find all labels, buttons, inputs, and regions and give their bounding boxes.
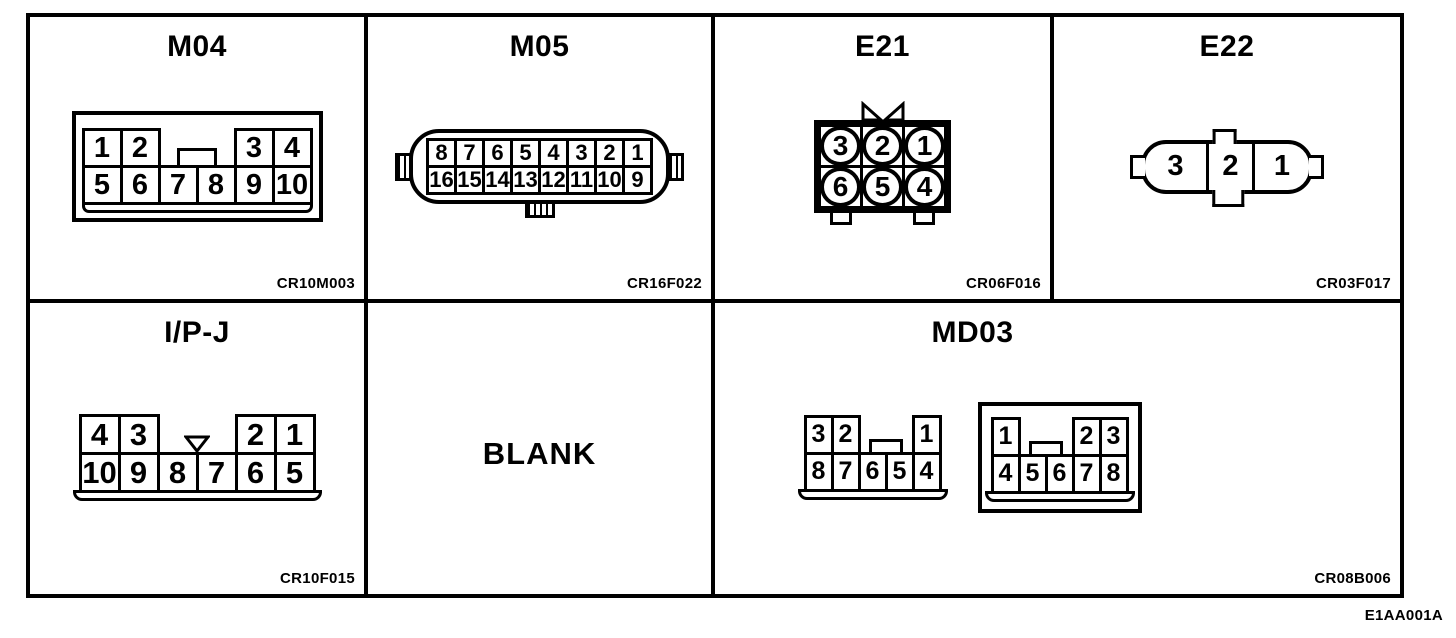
pin-circle: 5 [862, 167, 903, 207]
pin-cell: 1 [912, 415, 942, 455]
pin-cell: 8 [426, 138, 457, 168]
pin-cell: 3 [804, 415, 834, 455]
table-cell-blank: BLANK [368, 303, 715, 594]
pin-row: 1 2 3 [991, 417, 1129, 457]
pin-gap [1018, 417, 1075, 457]
pin-cell: 1 [902, 124, 947, 168]
connector-housing: 8 7 6 5 4 3 2 1 16 15 14 13 12 [409, 129, 670, 204]
pin-cell: 8 [804, 452, 834, 492]
pin-row: 8 7 6 5 4 3 2 1 [426, 138, 653, 168]
pin-cell: 3 [1145, 144, 1209, 190]
pin-cell: 6 [858, 452, 888, 492]
pin-cell: 5 [860, 165, 905, 209]
pin-cell: 6 [818, 165, 863, 209]
pin-cell: 12 [538, 165, 569, 195]
pin-circle: 2 [862, 126, 903, 166]
pin-cell: 1 [991, 417, 1021, 457]
pin-cell: 7 [831, 452, 861, 492]
pin-circle: 3 [820, 126, 861, 166]
connector-figure-m05: 8 7 6 5 4 3 2 1 16 15 14 13 12 [368, 64, 711, 299]
bottom-tab-icon [1212, 190, 1244, 207]
pin-gap [157, 414, 238, 455]
pin-row: 1 2 3 4 [82, 128, 313, 168]
connector-title: MD03 [715, 316, 1400, 350]
connector-housing: 3 2 1 6 5 4 [814, 120, 951, 213]
pin-cell: 5 [274, 452, 316, 493]
orientation-triangle-icon [184, 435, 210, 453]
pin-row: 10 9 8 7 6 5 [79, 452, 316, 493]
connector-figure-md03: 3 2 1 8 7 6 5 4 [715, 350, 1400, 594]
pin-cell: 4 [902, 165, 947, 209]
pin-row: 4 5 6 7 8 [991, 454, 1129, 494]
pin-cell: 5 [1018, 454, 1048, 494]
pin-cell: 9 [234, 165, 275, 205]
end-notch-icon [1309, 155, 1324, 179]
pin-cell: 3 [1099, 417, 1129, 457]
connector-housing-right: 1 2 3 4 5 6 7 8 [991, 417, 1129, 502]
pin-cell: 16 [426, 165, 457, 195]
pin-row: 3 2 1 [804, 415, 942, 455]
pin-cell: 14 [482, 165, 513, 195]
pin-cell: 15 [454, 165, 485, 195]
connector-housing: 1 2 3 4 5 6 7 8 9 10 [72, 111, 323, 222]
pin-cell: 2 [1209, 144, 1255, 190]
pin-cell: 3 [118, 414, 160, 455]
pin-cell: 2 [860, 124, 905, 168]
pin-cell: 2 [594, 138, 625, 168]
pin-cell: 4 [538, 138, 569, 168]
connector-figure-e21: 3 2 1 6 5 4 [715, 64, 1050, 299]
pin-cell: 8 [157, 452, 199, 493]
mount-tab-icon [830, 211, 852, 225]
pin-cell: 2 [831, 415, 861, 455]
pin-cell: 2 [1072, 417, 1102, 457]
pin-cell: 8 [1099, 454, 1129, 494]
connector-body: 3 2 1 6 5 4 [814, 120, 951, 213]
figure-code: CR06F016 [966, 275, 1041, 292]
pin-cell: 9 [622, 165, 653, 195]
table-cell-m05: M05 8 7 6 5 4 3 2 1 [368, 17, 715, 303]
connector-title: E21 [715, 30, 1050, 64]
pin-cell: 10 [272, 165, 313, 205]
connector-figure-m04: 1 2 3 4 5 6 7 8 9 10 [30, 64, 364, 299]
pin-cell: 6 [1045, 454, 1075, 494]
pin-cell: 1 [82, 128, 123, 168]
pin-cell: 6 [482, 138, 513, 168]
connector-housing: 4 3 2 1 10 9 8 7 6 5 [79, 414, 316, 501]
pin-circle: 6 [820, 167, 861, 207]
pin-cell: 7 [454, 138, 485, 168]
figure-code: CR03F017 [1316, 275, 1391, 292]
pin-cell: 3 [818, 124, 863, 168]
pin-row: 3 2 1 [818, 124, 947, 168]
pin-cell: 4 [79, 414, 121, 455]
pin-circle: 4 [904, 167, 945, 207]
connector-title: M05 [368, 30, 711, 64]
connector-housing: 3 2 1 [1141, 140, 1313, 194]
page-reference-code: E1AA001A [1365, 607, 1443, 624]
pin-cell: 2 [120, 128, 161, 168]
mount-tab-icon [913, 211, 935, 225]
pin-row: 4 3 2 1 [79, 414, 316, 455]
connector-body: 3 2 1 [1141, 140, 1313, 194]
table-cell-md03: MD03 3 2 1 8 7 6 5 [715, 303, 1400, 594]
figure-code: CR10M003 [277, 275, 355, 292]
blank-label: BLANK [368, 303, 711, 594]
connector-pinout-table: M04 1 2 3 4 5 6 7 8 9 10 [26, 13, 1404, 598]
pin-cell: 10 [79, 452, 121, 493]
pin-cell: 10 [594, 165, 625, 195]
connector-figure-ipj: 4 3 2 1 10 9 8 7 6 5 [30, 350, 364, 594]
connector-title: I/P-J [30, 316, 364, 350]
pin-cell: 3 [234, 128, 275, 168]
pin-cell: 4 [912, 452, 942, 492]
pin-circle: 1 [904, 126, 945, 166]
table-cell-e22: E22 3 2 1 CR03F017 [1054, 17, 1400, 303]
pin-cell: 7 [196, 452, 238, 493]
connector-housing-left: 3 2 1 8 7 6 5 4 [804, 415, 942, 500]
pin-cell: 4 [991, 454, 1021, 494]
pin-cell: 13 [510, 165, 541, 195]
pin-cell: 5 [885, 452, 915, 492]
connector-title: E22 [1054, 30, 1400, 64]
pin-cell: 5 [510, 138, 541, 168]
table-cell-m04: M04 1 2 3 4 5 6 7 8 9 10 [30, 17, 368, 303]
connector-outer-frame: 1 2 3 4 5 6 7 8 [978, 402, 1142, 513]
pin-row: 6 5 4 [818, 165, 947, 209]
pin-gap [858, 415, 915, 455]
pin-cell: 3 [566, 138, 597, 168]
end-notch-icon [1130, 155, 1145, 179]
table-cell-ipj: I/P-J 4 3 2 1 10 9 8 [30, 303, 368, 594]
top-tab-icon [1213, 129, 1237, 144]
pin-cell: 1 [622, 138, 653, 168]
pin-cell: 7 [1072, 454, 1102, 494]
figure-code: CR10F015 [280, 570, 355, 587]
pin-row: 5 6 7 8 9 10 [82, 165, 313, 205]
table-cell-e21: E21 3 2 1 6 5 4 [715, 17, 1054, 303]
pin-cell: 6 [120, 165, 161, 205]
pin-cell: 5 [82, 165, 123, 205]
pin-row: 8 7 6 5 4 [804, 452, 942, 492]
pin-gap [158, 128, 237, 168]
connector-pair: 3 2 1 8 7 6 5 4 [804, 402, 1142, 513]
pin-cell: 8 [196, 165, 237, 205]
pin-cell: 1 [1255, 144, 1309, 190]
pin-cell: 6 [235, 452, 277, 493]
figure-code: CR16F022 [627, 275, 702, 292]
pin-cell: 11 [566, 165, 597, 195]
connector-title: M04 [30, 30, 364, 64]
connector-figure-e22: 3 2 1 [1054, 64, 1400, 299]
figure-code: CR08B006 [1314, 570, 1391, 587]
pin-cell: 2 [235, 414, 277, 455]
key-notch-bowtie-icon [861, 101, 905, 121]
pin-cell: 1 [274, 414, 316, 455]
pin-cell: 7 [158, 165, 199, 205]
pin-cell: 4 [272, 128, 313, 168]
pin-row: 16 15 14 13 12 11 10 9 [426, 165, 653, 195]
connector-body: 8 7 6 5 4 3 2 1 16 15 14 13 12 [409, 129, 670, 204]
pin-cell: 9 [118, 452, 160, 493]
